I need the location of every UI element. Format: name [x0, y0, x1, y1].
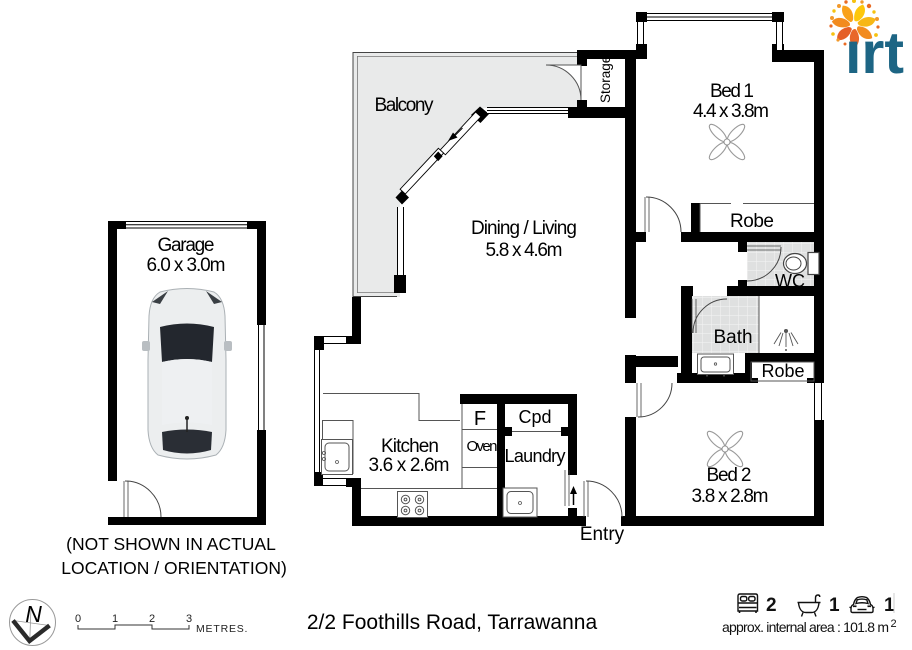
svg-text:Oven: Oven [467, 438, 498, 455]
svg-text:WC: WC [775, 271, 805, 291]
svg-text:Storage: Storage [598, 56, 613, 103]
svg-text:1: 1 [112, 613, 118, 625]
svg-text:2: 2 [149, 613, 155, 625]
svg-text:approx. internal area : 101.8: approx. internal area : 101.8 m [722, 619, 889, 635]
svg-text:3.8 x 2.8m: 3.8 x 2.8m [692, 486, 769, 507]
svg-text:Kitchen: Kitchen [381, 436, 439, 457]
svg-text:Robe: Robe [761, 361, 804, 381]
svg-text:METRES.: METRES. [196, 623, 248, 635]
svg-text:1: 1 [829, 595, 840, 616]
svg-text:5.8 x 4.6m: 5.8 x 4.6m [486, 240, 563, 261]
svg-text:4.4 x 3.8m: 4.4 x 3.8m [693, 101, 769, 122]
svg-text:2: 2 [766, 595, 777, 616]
svg-text:6.0 x 3.0m: 6.0 x 3.0m [147, 255, 226, 276]
svg-text:Bed 1: Bed 1 [710, 81, 754, 102]
svg-text:Dining / Living: Dining / Living [471, 218, 577, 239]
svg-text:2/2 Foothills Road, Tarrawanna: 2/2 Foothills Road, Tarrawanna [307, 611, 598, 634]
svg-text:1: 1 [884, 595, 895, 616]
svg-text:Balcony: Balcony [375, 95, 435, 116]
svg-text:Garage: Garage [158, 235, 215, 256]
svg-text:Bed 2: Bed 2 [707, 465, 752, 486]
svg-text:Robe: Robe [730, 211, 774, 232]
svg-text:F: F [474, 408, 486, 430]
svg-text:N: N [25, 601, 42, 627]
svg-text:Laundry: Laundry [505, 446, 566, 466]
svg-text:Entry: Entry [580, 524, 625, 545]
svg-text:(NOT SHOWN IN ACTUAL: (NOT SHOWN IN ACTUAL [66, 534, 276, 554]
svg-text:3: 3 [186, 613, 192, 625]
svg-text:3.6 x 2.6m: 3.6 x 2.6m [369, 455, 450, 476]
svg-text:Bath: Bath [713, 327, 752, 348]
svg-text:2: 2 [891, 618, 897, 630]
svg-text:0: 0 [75, 613, 81, 625]
svg-text:LOCATION / ORIENTATION): LOCATION / ORIENTATION) [61, 558, 287, 578]
svg-text:Cpd: Cpd [518, 407, 551, 427]
svg-text:ırt: ırt [845, 20, 904, 86]
